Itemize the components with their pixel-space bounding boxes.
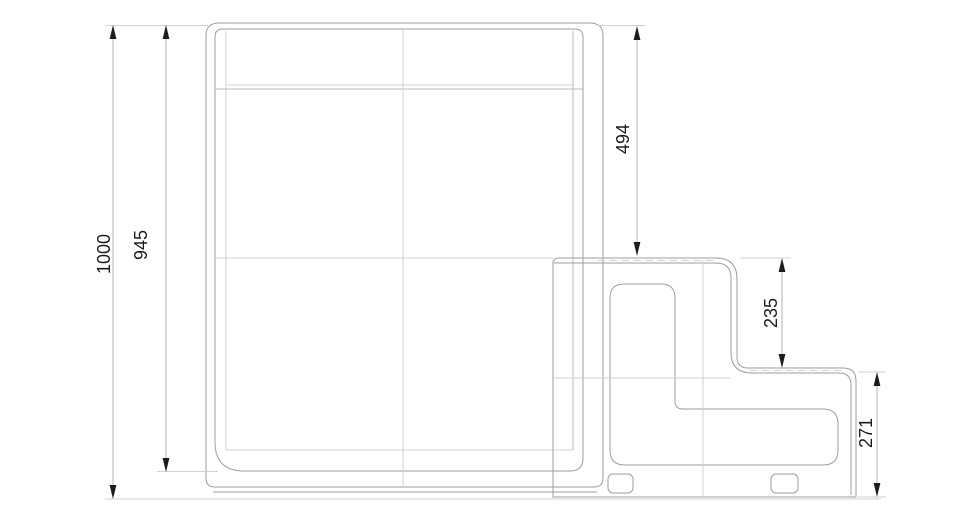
dimension-label: 235 xyxy=(761,298,781,328)
arrowhead-up-icon xyxy=(634,26,641,40)
dimension-overall-height: 1000 xyxy=(94,25,116,499)
dimension-label: 1000 xyxy=(94,234,114,274)
arrowhead-up-icon xyxy=(163,25,170,39)
arrowhead-up-icon xyxy=(874,372,881,386)
step-foot-left xyxy=(608,474,633,493)
cabinet-outer-shell xyxy=(206,23,603,487)
cabinet-inner-shell xyxy=(215,29,583,471)
step-foot-right xyxy=(771,474,798,493)
step-unit-profile xyxy=(553,258,856,497)
main-cabinet-profile xyxy=(206,23,603,492)
dimension-step-rise: 235 xyxy=(761,258,785,368)
dimension-body-height: 945 xyxy=(131,25,169,472)
dimension-label: 271 xyxy=(856,418,876,448)
step-side-panel xyxy=(610,284,838,465)
arrowhead-down-icon xyxy=(779,354,786,368)
arrowhead-down-icon xyxy=(874,483,881,497)
dimension-label: 945 xyxy=(131,230,151,260)
arrowhead-up-icon xyxy=(779,258,786,272)
dimension-lower-step-height: 271 xyxy=(856,372,880,497)
arrowhead-down-icon xyxy=(110,485,117,499)
dimension-top-to-upper-step: 494 xyxy=(613,26,640,256)
drawing-svg: 1000 945 494 235 271 xyxy=(0,0,980,522)
dimension-label: 494 xyxy=(613,124,633,154)
arrowhead-up-icon xyxy=(110,25,117,39)
extension-lines xyxy=(106,26,886,498)
technical-drawing-canvas: 1000 945 494 235 271 xyxy=(0,0,980,522)
arrowhead-down-icon xyxy=(634,242,641,256)
arrowhead-down-icon xyxy=(163,458,170,472)
